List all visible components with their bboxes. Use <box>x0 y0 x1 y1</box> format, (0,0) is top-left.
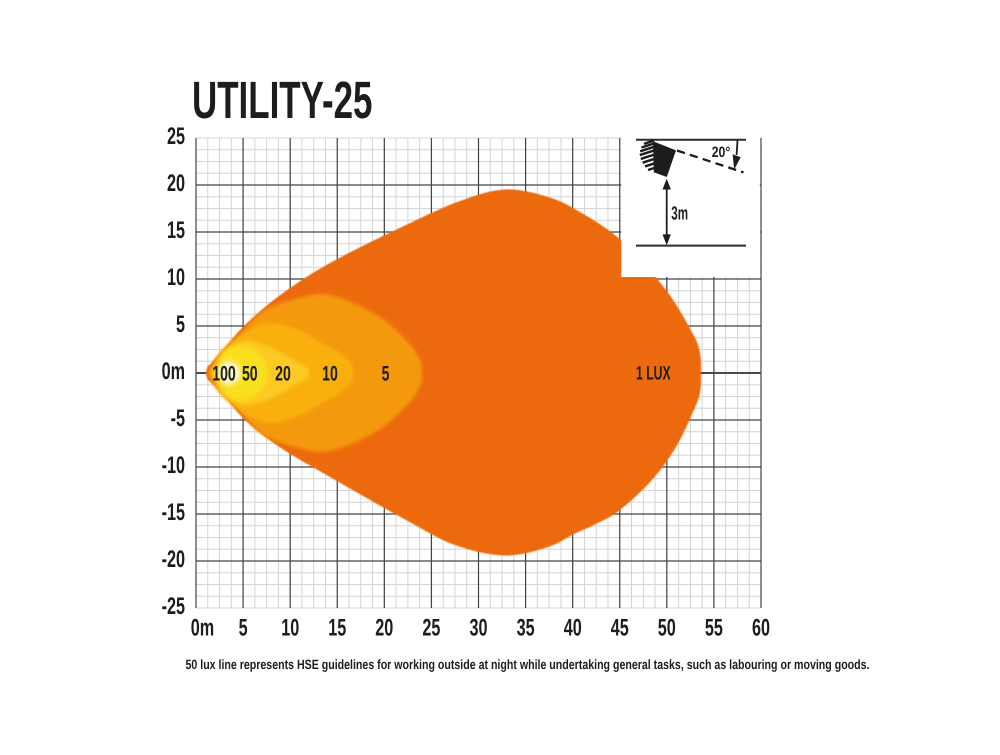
svg-text:50: 50 <box>658 615 676 642</box>
svg-text:15: 15 <box>328 615 346 642</box>
svg-text:40: 40 <box>564 615 582 642</box>
svg-text:100: 100 <box>212 362 235 385</box>
svg-text:0m: 0m <box>191 615 214 642</box>
svg-text:20: 20 <box>275 362 291 385</box>
svg-text:-5: -5 <box>171 405 185 432</box>
svg-text:45: 45 <box>611 615 629 642</box>
svg-text:-25: -25 <box>162 593 185 620</box>
svg-text:60: 60 <box>752 615 770 642</box>
svg-text:1 LUX: 1 LUX <box>636 363 671 385</box>
svg-text:20: 20 <box>167 170 185 197</box>
svg-text:5: 5 <box>382 362 390 385</box>
svg-text:10: 10 <box>322 362 338 385</box>
svg-text:50 lux line represents HSE gui: 50 lux line represents HSE guidelines fo… <box>186 657 870 672</box>
svg-text:20°: 20° <box>712 144 731 161</box>
svg-text:20: 20 <box>375 615 393 642</box>
svg-text:UTILITY-25: UTILITY-25 <box>192 71 372 130</box>
svg-text:10: 10 <box>167 264 185 291</box>
svg-text:-10: -10 <box>162 452 185 479</box>
svg-text:30: 30 <box>469 615 487 642</box>
svg-text:10: 10 <box>281 615 299 642</box>
svg-text:15: 15 <box>167 217 185 244</box>
svg-text:-15: -15 <box>162 499 185 526</box>
svg-text:35: 35 <box>517 615 535 642</box>
svg-text:3m: 3m <box>671 204 688 225</box>
svg-text:25: 25 <box>167 123 185 150</box>
svg-text:5: 5 <box>239 615 248 642</box>
svg-text:25: 25 <box>422 615 440 642</box>
svg-text:50: 50 <box>242 362 258 385</box>
svg-text:5: 5 <box>176 311 185 338</box>
svg-text:55: 55 <box>705 615 723 642</box>
svg-text:0m: 0m <box>162 358 185 385</box>
svg-text:-20: -20 <box>162 546 185 573</box>
